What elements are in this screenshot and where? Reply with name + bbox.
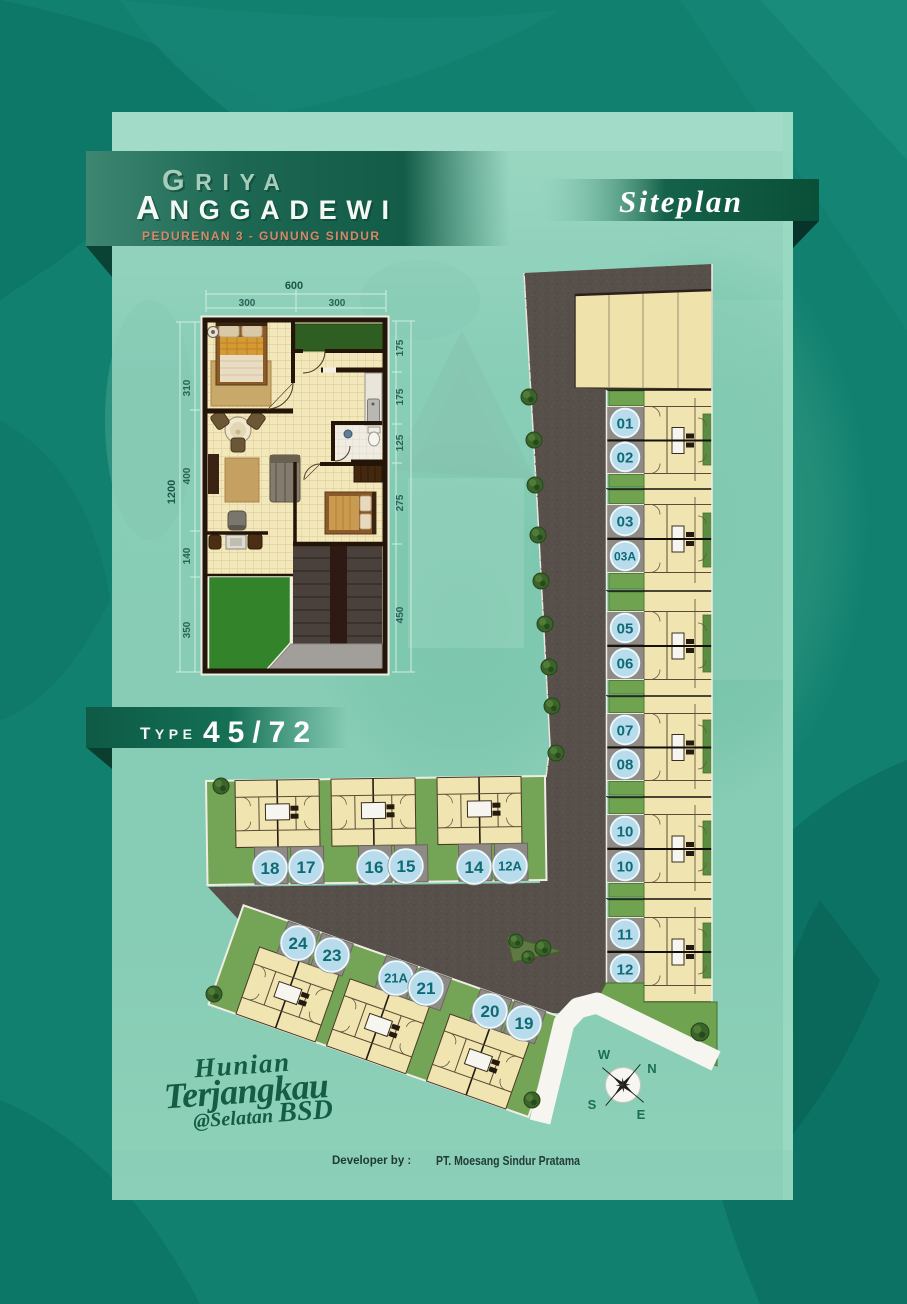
svg-text:275: 275	[395, 494, 406, 511]
svg-text:18: 18	[261, 859, 280, 878]
svg-text:175: 175	[395, 339, 406, 356]
svg-text:03A: 03A	[614, 549, 636, 563]
svg-text:140: 140	[182, 547, 193, 564]
svg-text:12: 12	[617, 961, 634, 978]
svg-text:Developer by :: Developer by :	[332, 1155, 411, 1167]
svg-text:PEDURENAN 3 - GUNUNG SINDUR: PEDURENAN 3 - GUNUNG SINDUR	[142, 229, 379, 243]
svg-text:05: 05	[617, 620, 634, 637]
svg-text:06: 06	[617, 655, 634, 672]
svg-text:E: E	[637, 1107, 646, 1122]
svg-text:175: 175	[395, 388, 406, 405]
svg-text:07: 07	[617, 722, 634, 739]
svg-text:1200: 1200	[166, 480, 178, 504]
svg-text:12A: 12A	[498, 859, 522, 874]
svg-text:14: 14	[465, 858, 484, 877]
svg-text:16: 16	[365, 858, 384, 877]
svg-text:300: 300	[239, 298, 256, 309]
svg-text:24: 24	[289, 934, 308, 953]
svg-text:20: 20	[481, 1002, 500, 1021]
svg-text:21A: 21A	[384, 971, 408, 986]
svg-text:08: 08	[617, 756, 634, 773]
svg-text:10: 10	[617, 823, 634, 840]
svg-text:350: 350	[182, 621, 193, 638]
svg-text:03: 03	[617, 513, 634, 530]
svg-text:S: S	[588, 1097, 597, 1112]
svg-text:17: 17	[297, 858, 316, 877]
svg-text:02: 02	[617, 449, 634, 466]
svg-text:15: 15	[397, 857, 416, 876]
svg-text:11: 11	[617, 926, 633, 943]
svg-text:300: 300	[329, 298, 346, 309]
svg-text:600: 600	[285, 280, 303, 292]
svg-text:125: 125	[395, 434, 406, 451]
svg-text:01: 01	[617, 415, 634, 432]
svg-text:23: 23	[323, 946, 342, 965]
svg-text:21: 21	[417, 979, 436, 998]
svg-text:45/72: 45/72	[203, 716, 313, 749]
svg-text:N: N	[647, 1061, 656, 1076]
svg-text:ANGGADEWI: ANGGADEWI	[136, 189, 389, 226]
svg-text:400: 400	[182, 467, 193, 484]
svg-text:W: W	[598, 1047, 611, 1062]
svg-text:19: 19	[515, 1014, 534, 1033]
svg-text:310: 310	[182, 379, 193, 396]
svg-text:450: 450	[395, 606, 406, 623]
svg-text:10: 10	[617, 858, 634, 875]
svg-text:PT. Moesang Sindur Pratama: PT. Moesang Sindur Pratama	[436, 1154, 581, 1168]
